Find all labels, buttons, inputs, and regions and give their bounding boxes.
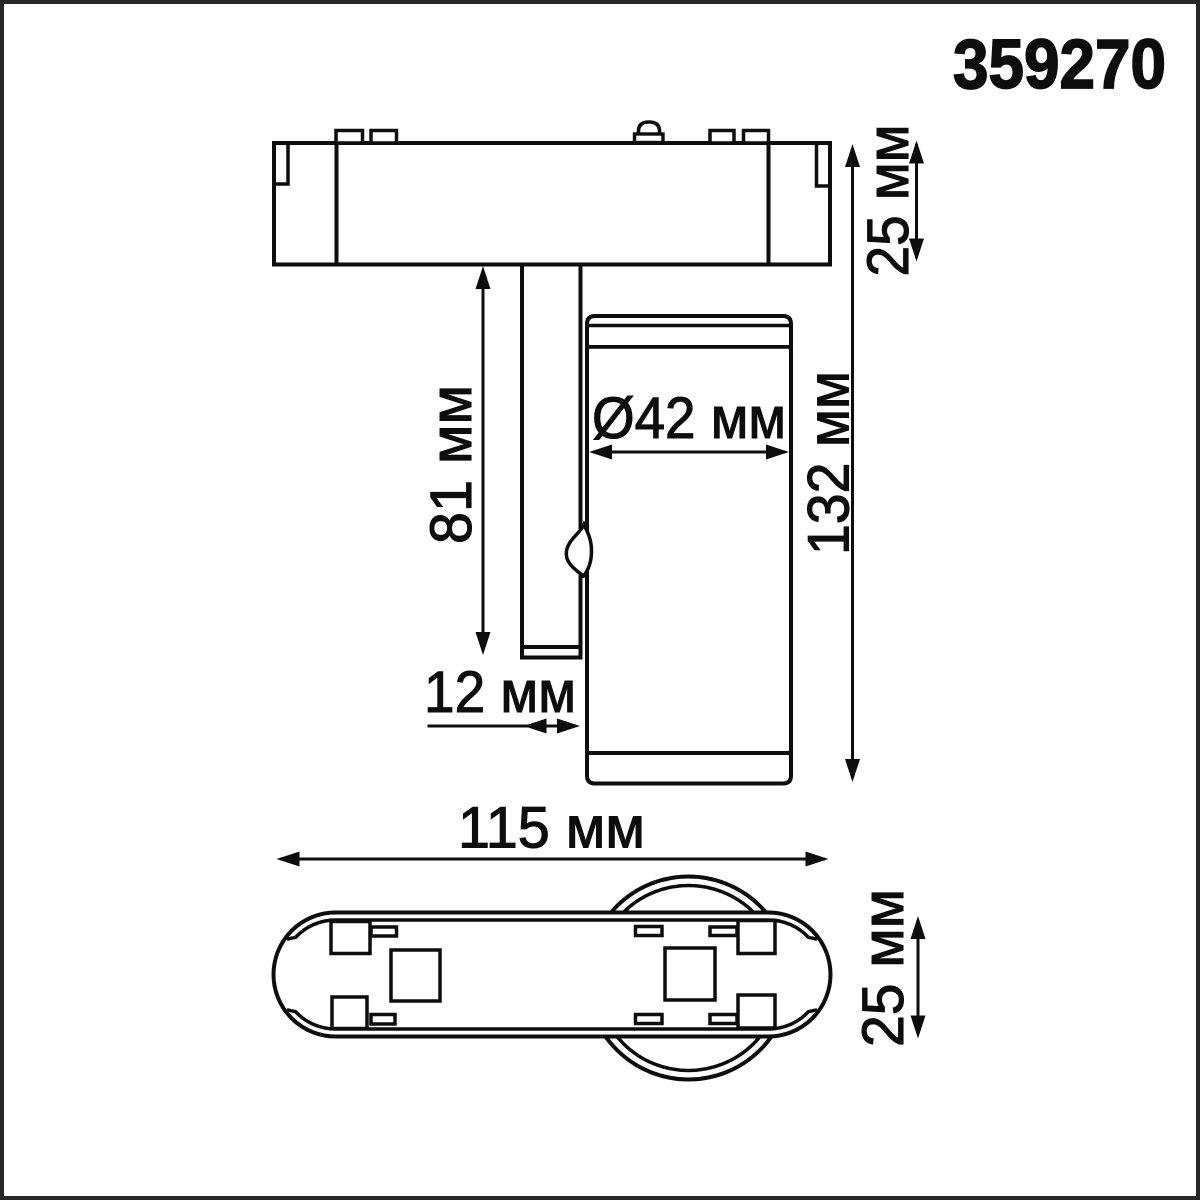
svg-text:25 мм: 25 мм bbox=[856, 125, 921, 277]
svg-text:115 мм: 115 мм bbox=[458, 796, 645, 861]
svg-text:81 мм: 81 мм bbox=[419, 385, 484, 544]
svg-text:132 мм: 132 мм bbox=[797, 371, 862, 555]
svg-text:12 мм: 12 мм bbox=[424, 660, 576, 725]
svg-text:Ø42 мм: Ø42 мм bbox=[592, 386, 786, 451]
svg-text:25 мм: 25 мм bbox=[851, 889, 916, 1047]
svg-text:359270: 359270 bbox=[953, 25, 1166, 103]
